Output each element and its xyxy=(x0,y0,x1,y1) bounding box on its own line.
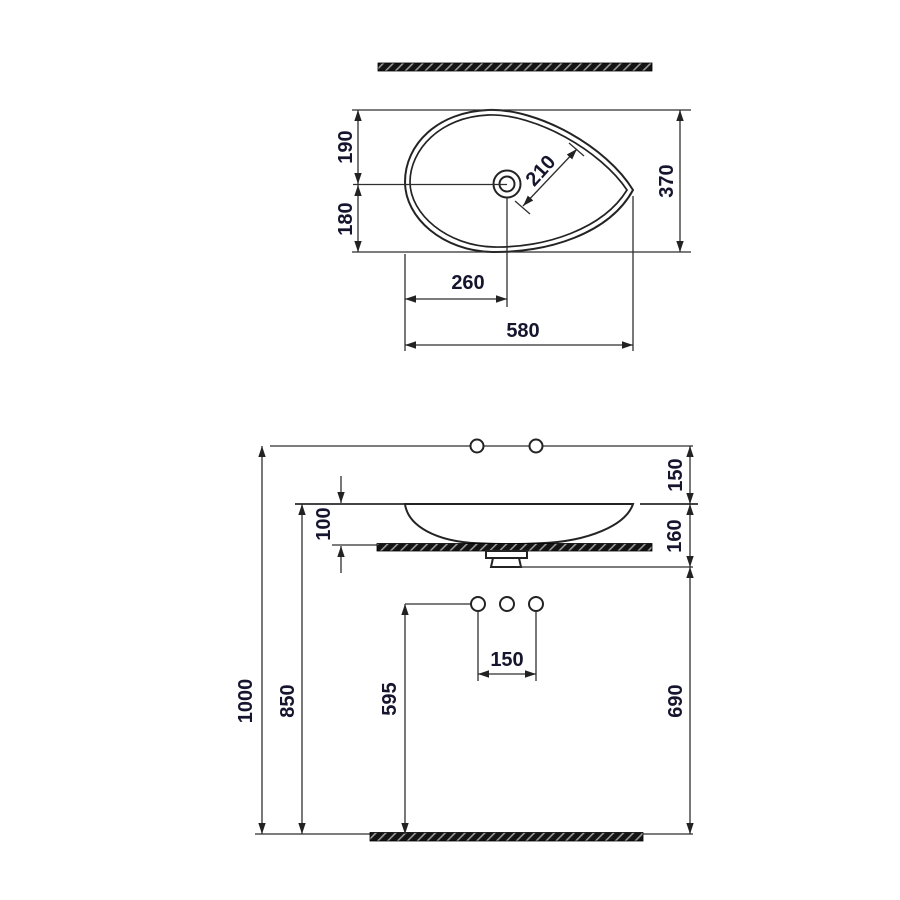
faucet-hole-left xyxy=(471,440,484,453)
wall-section-bar xyxy=(378,63,652,71)
dim-label-580: 580 xyxy=(506,320,539,342)
dim-label-150-holes: 150 xyxy=(490,649,523,671)
front-view: 150 160 100 1000 850 595 690 150 xyxy=(235,440,698,842)
dim-label-370: 370 xyxy=(656,164,678,197)
drawing-svg: 190 180 210 370 260 580 xyxy=(0,0,900,900)
countertop-section-bar xyxy=(377,544,652,552)
top-view: 190 180 210 370 260 580 xyxy=(335,63,691,351)
drain-trap xyxy=(486,551,527,567)
dim-label-180: 180 xyxy=(335,202,357,235)
dim-label-190: 190 xyxy=(335,130,357,163)
dim-label-100: 100 xyxy=(313,507,335,540)
dim-label-850: 850 xyxy=(277,684,299,717)
outlet-hole-right xyxy=(529,597,543,611)
bowl-profile xyxy=(405,504,633,544)
dim-label-1000: 1000 xyxy=(235,679,257,724)
dim-label-150-faucet: 150 xyxy=(665,458,687,491)
faucet-hole-right xyxy=(530,440,543,453)
dim-label-690: 690 xyxy=(665,684,687,717)
dim-label-595: 595 xyxy=(379,682,401,715)
outlet-hole-center xyxy=(500,597,514,611)
technical-drawing-page: 190 180 210 370 260 580 xyxy=(0,0,900,900)
dim-label-210: 210 xyxy=(522,151,561,191)
dim-label-160: 160 xyxy=(664,519,686,552)
outlet-hole-left xyxy=(471,597,485,611)
dim-label-260: 260 xyxy=(451,272,484,294)
floor-section-bar xyxy=(370,833,643,842)
